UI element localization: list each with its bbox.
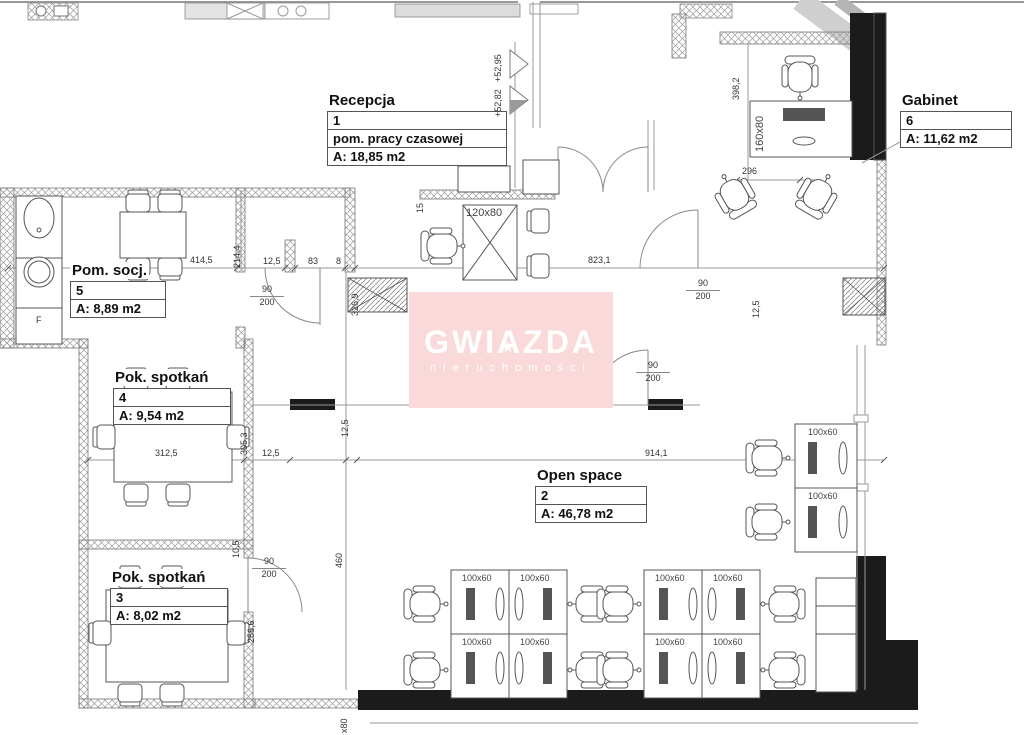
storage-cabinet [816, 578, 856, 692]
door-size-label: 90200 [250, 284, 284, 308]
room-title: Pom. socj. [70, 262, 149, 279]
room-area: A: 9,54 m2 [114, 407, 230, 424]
dim-12-5: 12,5 [752, 300, 761, 318]
gabinet-desk-set [707, 56, 852, 222]
dim-312-5: 312,5 [155, 449, 178, 458]
floorplan-page: GWIAZDA ★ nieruchomości Recepcja 1 pom. … [0, 0, 1024, 735]
room-number: 5 [71, 282, 165, 300]
reception-desk [421, 160, 559, 280]
dim-305-3: 305,3 [240, 432, 249, 455]
dim-460: 460 [335, 553, 344, 568]
label-open-desk: 100x60 [520, 574, 550, 583]
label-gabinet-desk: 160x80 [755, 116, 766, 152]
dim-296: 296 [742, 167, 757, 176]
dim-823-1: 823,1 [588, 256, 611, 265]
label-reception-desk: 120x80 [466, 208, 502, 219]
door-size-label: 90200 [686, 278, 720, 302]
room-area: A: 18,85 m2 [328, 148, 506, 165]
dim-12-5: 12,5 [263, 257, 281, 266]
dim-15: 15 [416, 203, 425, 213]
room-number: 4 [114, 389, 230, 407]
label-open-desk: 100x60 [462, 638, 492, 647]
room-number: 6 [901, 112, 1011, 130]
dim-256-6: 256,6 [247, 620, 256, 643]
room-title: Recepcja [327, 92, 397, 109]
level-marker-lower: +52,82 [494, 89, 503, 117]
dim-214-4: 214,4 [233, 245, 242, 268]
room-label-pok-spotkan-4: Pok. spotkań 4 A: 9,54 m2 [113, 369, 231, 425]
dim-414-5: 414,5 [190, 256, 213, 265]
room-label-open-space: Open space 2 A: 46,78 m2 [535, 467, 647, 523]
watermark-subtitle: nieruchomości [430, 362, 592, 374]
dim-326-9: 326,9 [351, 293, 360, 316]
watermark-logo: GWIAZDA ★ nieruchomości [409, 292, 613, 408]
level-marker-upper: +52,95 [494, 54, 503, 82]
desk-stack-right [746, 424, 857, 552]
room-title: Gabinet [900, 92, 960, 109]
room-title: Pok. spotkań [113, 369, 210, 386]
label-open-desk: 100x60 [462, 574, 492, 583]
dim-914-1: 914,1 [645, 449, 668, 458]
room-label-pok-spotkan-3: Pok. spotkań 3 A: 8,02 m2 [110, 569, 228, 625]
label-open-desk: 100x60 [713, 574, 743, 583]
room-area: A: 8,02 m2 [111, 607, 227, 624]
room-area: A: 46,78 m2 [536, 505, 646, 522]
desk-cluster-b [597, 570, 805, 698]
label-open-desk: 100x60 [655, 638, 685, 647]
dim-83: 83 [308, 257, 318, 266]
dim-10-5: 10,5 [232, 540, 241, 558]
dim-12-5: 12,5 [262, 449, 280, 458]
label-open-desk: 100x60 [808, 428, 838, 437]
door-size-label: 90200 [252, 556, 286, 580]
dim-8: 8 [336, 257, 341, 266]
label-open-desk: 100x60 [713, 638, 743, 647]
star-icon: ★ [501, 338, 514, 356]
label-open-desk: 100x60 [808, 492, 838, 501]
dim-12-5: 12,5 [341, 419, 350, 437]
room-area: A: 8,89 m2 [71, 300, 165, 317]
room-label-gabinet: Gabinet 6 A: 11,62 m2 [900, 92, 1012, 148]
dim-398-2: 398,2 [732, 77, 741, 100]
room-number: 1 [328, 112, 506, 130]
desk-cluster-a [404, 570, 612, 698]
room-subtitle: pom. pracy czasowej [328, 130, 506, 148]
label-edge-x80: x80 [340, 718, 349, 733]
label-open-desk: 100x60 [655, 574, 685, 583]
room-label-pom-socj: Pom. socj. 5 A: 8,89 m2 [70, 262, 166, 318]
room-title: Open space [535, 467, 624, 484]
door-size-label: 90200 [636, 360, 670, 384]
room-title: Pok. spotkań [110, 569, 207, 586]
room-number: 3 [111, 589, 227, 607]
room-area: A: 11,62 m2 [901, 130, 1011, 147]
label-socj-fixture: F [36, 316, 42, 325]
room-label-recepcja: Recepcja 1 pom. pracy czasowej A: 18,85 … [327, 92, 507, 166]
label-open-desk: 100x60 [520, 638, 550, 647]
room-number: 2 [536, 487, 646, 505]
